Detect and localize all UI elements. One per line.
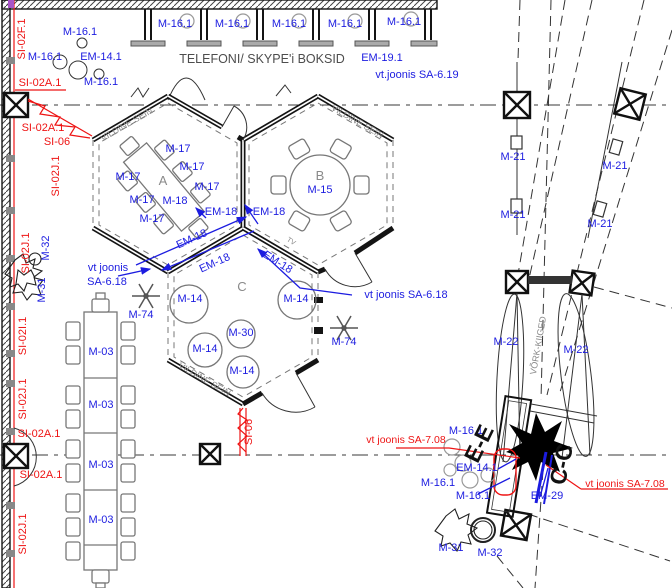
label-si-02a-1: SI-02A.1: [22, 122, 65, 134]
label-m16-1: M-16.1: [421, 477, 455, 489]
label-si-06: SI-06: [44, 136, 70, 148]
label-m03: M-03: [88, 346, 113, 358]
magenta-tick: [8, 0, 14, 8]
label-m17: M-17: [179, 161, 204, 173]
label-si-02a-1: SI-02A.1: [20, 469, 63, 481]
label-si-02j-1: SI-02J.1: [50, 156, 62, 197]
label-tv: TV: [285, 236, 297, 247]
label-si-02j-1: SI-02J.1: [20, 233, 32, 274]
top-wall: [2, 0, 437, 9]
label-vork-kiiged: VÕRK-KIIGED: [528, 315, 548, 375]
label-m16-1: M-16.1: [456, 490, 490, 502]
label-m17: M-17: [115, 171, 140, 183]
label-m16-1: M-16.1: [215, 18, 249, 30]
label-vt-joonis-sa-7-08: vt joonis SA-7.08: [366, 434, 446, 446]
label-m21: M-21: [500, 151, 525, 163]
floor-plan-canvas: M-16.1 M-16.1 EM-14.1 M-16.1 M-16.1 M-16…: [0, 0, 672, 588]
label-em18: EM-18: [205, 206, 237, 218]
label-m30: M-30: [228, 327, 253, 339]
label-m17: M-17: [194, 181, 219, 193]
label-em19-1: EM-19.1: [361, 52, 403, 64]
label-m21: M-21: [602, 160, 627, 172]
label-m16-1: M-16.1: [28, 51, 62, 63]
booth-door-sills: [131, 41, 437, 46]
label-vildine-sein: VILDINE SEIN: [330, 102, 386, 140]
floor-plan-page: M-16.1 M-16.1 EM-14.1 M-16.1 M-16.1 M-16…: [0, 0, 672, 588]
label-em18: EM-18: [198, 251, 232, 275]
label-vildine-sein: VILDINE SEIN: [177, 360, 233, 398]
label-m16-1: M-16.1: [387, 16, 421, 28]
label-si-02i-1: SI-02I.1: [17, 317, 29, 356]
label-m17: M-17: [165, 143, 190, 155]
label-m32: M-32: [477, 547, 502, 559]
label-vt-joonis-sa-6-19: vt.joonis SA-6.19: [375, 69, 458, 81]
label-vt-joonis: vt joonis: [88, 262, 129, 274]
ceiling-deco: [53, 38, 291, 100]
label-m03: M-03: [88, 399, 113, 411]
label-m14: M-14: [283, 293, 308, 305]
label-m31: M-31: [438, 542, 463, 554]
label-m32: M-32: [40, 235, 52, 260]
label-vt-joonis-sa-7-08: vt joonis SA-7.08: [585, 478, 665, 490]
label-m74: M-74: [331, 336, 356, 348]
label-vildine-sein: VILDINE SEIN: [99, 105, 155, 143]
swing-beam: [528, 276, 572, 284]
label-m31: M-31: [36, 277, 48, 302]
label-room-b: B: [316, 168, 325, 183]
label-em18: EM-18: [253, 206, 285, 218]
label-vt-joonis-sa-6-18: vt joonis SA-6.18: [364, 289, 447, 301]
label-m16-1: M-16.1: [158, 18, 192, 30]
label-room-c: C: [237, 279, 246, 294]
light-fixtures: [511, 136, 623, 217]
label-em14-1: EM-14.1: [80, 51, 122, 63]
label-sa-6-18: SA-6.18: [87, 276, 127, 288]
label-m03: M-03: [88, 459, 113, 471]
label-m14: M-14: [177, 293, 202, 305]
label-m18: M-18: [162, 195, 187, 207]
label-m16-1: M-16.1: [63, 26, 97, 38]
label-m22: M-22: [493, 336, 518, 348]
label-si-02j-1: SI-02J.1: [17, 514, 29, 555]
label-m21: M-21: [587, 218, 612, 230]
label-si-02j-1: SI-02J.1: [17, 379, 29, 420]
label-m22: M-22: [563, 344, 588, 356]
label-si-02f-1: SI-02F.1: [16, 19, 28, 60]
label-m16-1: M-16.1: [84, 76, 118, 88]
label-m16-1: M-16.1: [328, 18, 362, 30]
label-m17: M-17: [139, 213, 164, 225]
label-m74: M-74: [128, 309, 153, 321]
hex-c-walls: [168, 228, 323, 404]
label-m17: M-17: [129, 194, 154, 206]
label-m14: M-14: [229, 365, 254, 377]
label-si-02a-1: SI-02A.1: [19, 77, 62, 89]
label-m15: M-15: [307, 184, 332, 196]
label-telefoni-skype-boksid: TELEFONI/ SKYPE'i BOKSID: [179, 52, 345, 66]
label-m03: M-03: [88, 514, 113, 526]
long-table: [66, 293, 135, 588]
label-si-02a-1: SI-02A.1: [18, 428, 61, 440]
label-em29: EM-29: [531, 490, 563, 502]
label-room-a: A: [159, 173, 168, 188]
label-m14: M-14: [192, 343, 217, 355]
left-wall: [2, 0, 10, 588]
label-m16-1: M-16.1: [272, 18, 306, 30]
label-si-06: SI-06: [243, 419, 255, 445]
label-m21: M-21: [500, 209, 525, 221]
